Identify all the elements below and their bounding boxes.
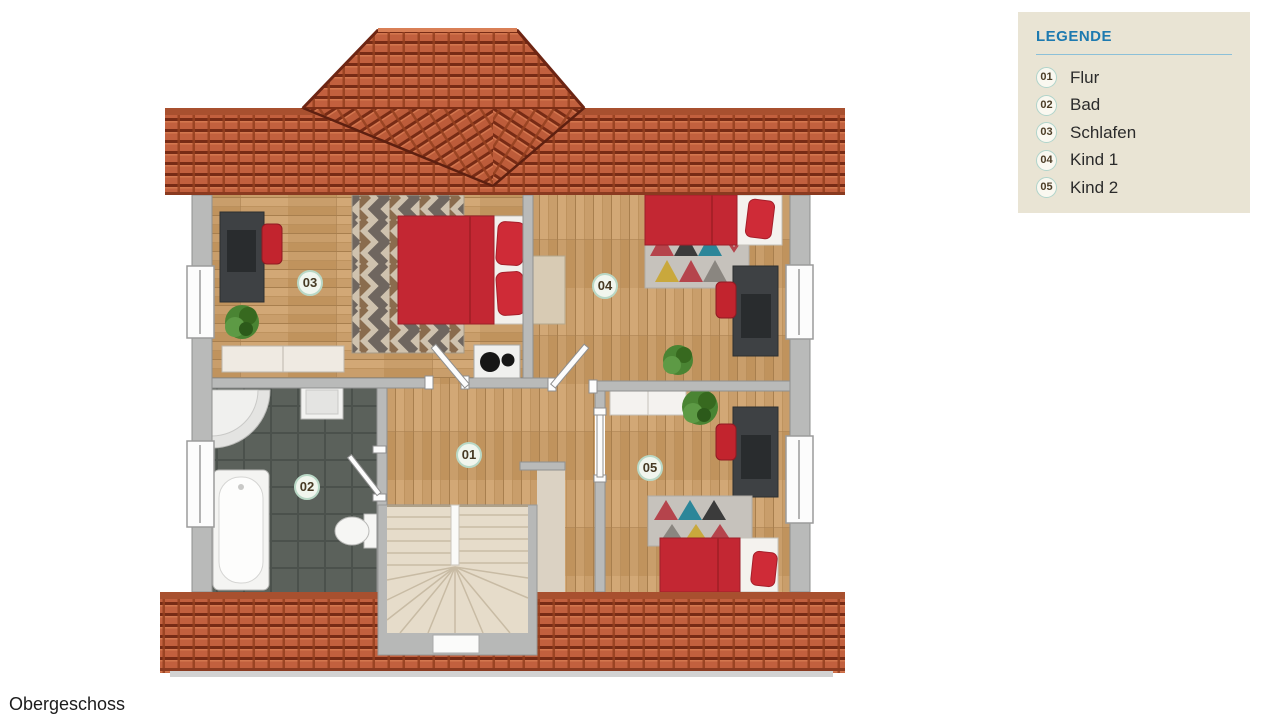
- chair-kind1: [716, 282, 736, 318]
- door-kind2: [597, 415, 603, 477]
- legend-title: LEGENDE: [1036, 28, 1232, 45]
- legend-label: Kind 1: [1070, 150, 1118, 170]
- room-badge-flur: 01: [456, 442, 482, 468]
- chair-schlafen: [262, 224, 282, 264]
- room-badge-kind2: 05: [637, 455, 663, 481]
- bed-kind1: [645, 195, 782, 245]
- wall-divider-03-04: [523, 195, 533, 388]
- legend-item-schlafen: 03 Schlafen: [1036, 122, 1232, 143]
- chair-kind2: [716, 424, 736, 460]
- legend-badge: 03: [1036, 122, 1057, 143]
- floor-title: Obergeschoss: [9, 694, 125, 715]
- wall-left: [192, 195, 212, 592]
- legend-item-kind1: 04 Kind 1: [1036, 150, 1232, 171]
- plant-schlafen: [225, 305, 259, 339]
- legend-label: Kind 2: [1070, 178, 1118, 198]
- roof-top: [165, 30, 845, 195]
- stair-divider: [451, 505, 459, 565]
- floorplan-page: 01 02 03 04 05 LEGENDE 01 Flur 02 Bad 03…: [0, 0, 1280, 720]
- wall-right: [790, 195, 810, 592]
- legend-item-flur: 01 Flur: [1036, 67, 1232, 88]
- legend-panel: LEGENDE 01 Flur 02 Bad 03 Schlafen 04 Ki…: [1018, 12, 1250, 213]
- legend-item-kind2: 05 Kind 2: [1036, 177, 1232, 198]
- plant-kind1: [663, 345, 693, 375]
- floor-light-strip: [537, 470, 565, 592]
- room-badge-schlafen: 03: [297, 270, 323, 296]
- double-bed: [398, 216, 528, 324]
- legend-label: Flur: [1070, 68, 1099, 88]
- legend-label: Bad: [1070, 95, 1100, 115]
- legend-divider: [1036, 54, 1232, 55]
- dormer: [303, 30, 584, 108]
- room-badge-kind1: 04: [592, 273, 618, 299]
- legend-label: Schlafen: [1070, 123, 1136, 143]
- plant-kind2: [682, 389, 718, 425]
- legend-badge: 04: [1036, 150, 1057, 171]
- stair-entry-step: [433, 635, 479, 653]
- dresser: [533, 256, 565, 324]
- bathtub: [213, 470, 269, 590]
- chimney: [474, 345, 520, 378]
- legend-badge: 02: [1036, 95, 1057, 116]
- legend-badge: 01: [1036, 67, 1057, 88]
- legend-item-bad: 02 Bad: [1036, 95, 1232, 116]
- room-badge-bad: 02: [294, 474, 320, 500]
- legend-badge: 05: [1036, 177, 1057, 198]
- staircase: [378, 505, 537, 655]
- bed-kind2: [660, 538, 778, 592]
